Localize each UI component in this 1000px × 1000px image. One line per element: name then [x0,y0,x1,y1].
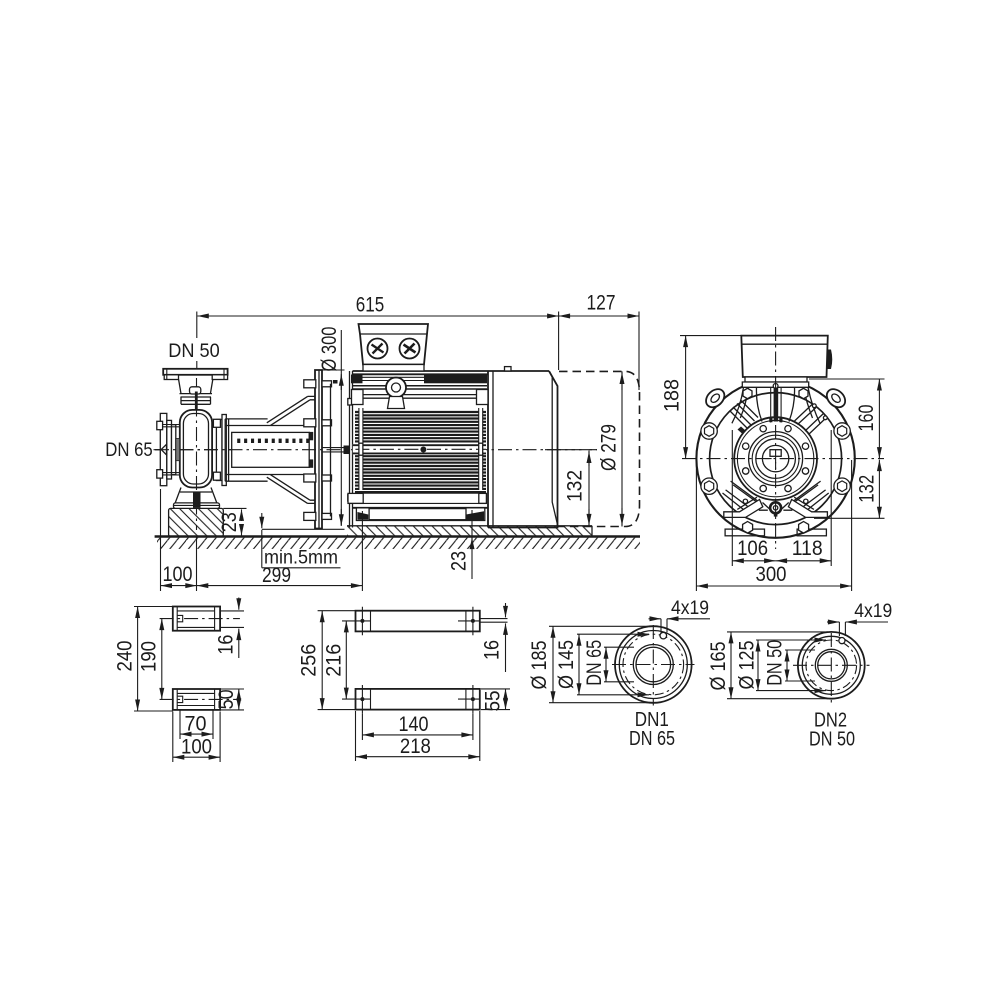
svg-text:16: 16 [214,635,237,655]
svg-text:Ø 145: Ø 145 [555,640,578,689]
svg-text:Ø 185: Ø 185 [528,641,551,690]
svg-text:4x19: 4x19 [671,598,709,619]
svg-text:DN 65: DN 65 [583,640,606,686]
svg-text:160: 160 [855,405,878,432]
svg-text:132: 132 [564,470,587,502]
svg-text:50: 50 [215,689,238,709]
svg-text:DN 65: DN 65 [105,440,153,461]
svg-text:4x19: 4x19 [854,601,892,622]
svg-text:615: 615 [356,294,385,317]
svg-text:Ø 279: Ø 279 [598,424,621,471]
svg-text:DN 50: DN 50 [764,640,787,686]
svg-text:23: 23 [218,512,241,532]
svg-text:299: 299 [262,564,291,587]
svg-text:216: 216 [323,644,346,677]
svg-text:218: 218 [400,735,431,758]
svg-text:140: 140 [399,713,429,736]
svg-text:23: 23 [447,551,470,571]
svg-text:118: 118 [792,537,823,560]
svg-text:Ø 125: Ø 125 [736,641,759,690]
svg-text:DN 50: DN 50 [809,727,855,750]
svg-text:Ø 165: Ø 165 [707,642,730,691]
svg-text:DN 65: DN 65 [629,727,675,750]
svg-text:100: 100 [181,735,212,758]
svg-text:Ø 300: Ø 300 [318,327,341,372]
svg-text:16: 16 [481,640,504,660]
svg-text:55: 55 [482,691,505,712]
svg-text:240: 240 [114,641,137,672]
svg-text:100: 100 [163,563,193,586]
svg-text:188: 188 [660,379,683,412]
svg-text:132: 132 [856,475,879,503]
svg-text:190: 190 [137,641,160,672]
svg-text:106: 106 [737,537,768,560]
svg-text:70: 70 [185,712,207,735]
svg-text:300: 300 [756,563,787,586]
svg-text:DN 50: DN 50 [168,341,220,362]
svg-text:127: 127 [587,292,616,315]
svg-text:256: 256 [298,644,321,677]
